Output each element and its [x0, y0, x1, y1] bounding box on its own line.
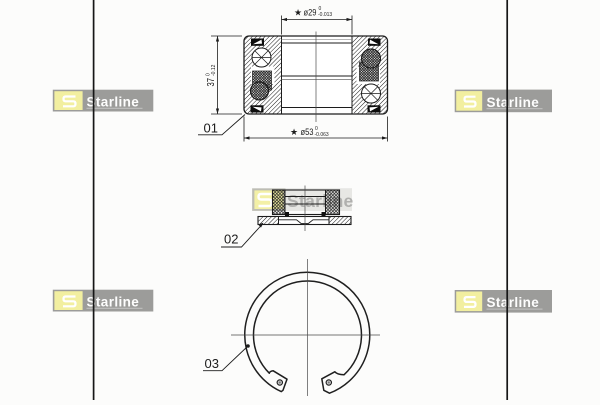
svg-text:Starline: Starline: [287, 191, 354, 211]
svg-text:ø29: ø29: [304, 7, 317, 17]
svg-text:02: 02: [224, 232, 238, 247]
svg-text:-0.013: -0.013: [318, 12, 332, 18]
svg-text:37: 37: [206, 78, 217, 87]
svg-text:-0.063: -0.063: [315, 132, 329, 138]
svg-text:0: 0: [315, 126, 318, 132]
svg-text:Starline: Starline: [487, 95, 540, 110]
svg-text:★: ★: [294, 7, 302, 17]
svg-text:★: ★: [290, 127, 298, 137]
svg-text:03: 03: [205, 356, 219, 371]
svg-text:01: 01: [204, 121, 218, 136]
svg-text:-0.12: -0.12: [211, 64, 217, 76]
svg-text:ø53: ø53: [301, 127, 314, 137]
svg-text:Starline: Starline: [487, 295, 540, 310]
